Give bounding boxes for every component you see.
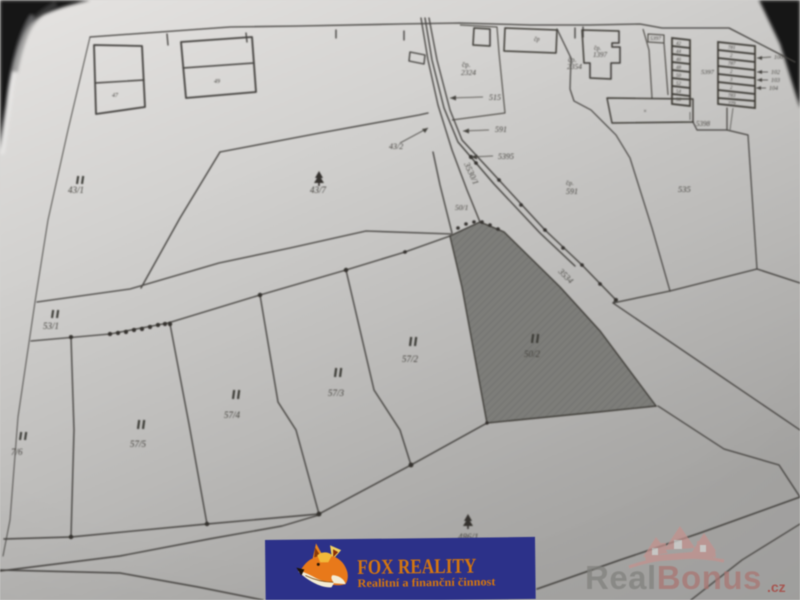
svg-text:43/2: 43/2	[389, 142, 403, 151]
svg-text:43/1: 43/1	[68, 185, 84, 195]
svg-text:2324: 2324	[461, 68, 476, 77]
svg-text:783: 783	[728, 94, 736, 99]
svg-text:42: 42	[676, 42, 682, 47]
svg-text:104: 104	[769, 85, 778, 92]
svg-text:57/2: 57/2	[402, 354, 419, 364]
svg-text:103: 103	[771, 78, 780, 84]
svg-text:52: 52	[676, 82, 682, 87]
svg-text:1397: 1397	[593, 51, 608, 59]
svg-text:100: 100	[774, 55, 783, 61]
svg-text:čp: čp	[534, 37, 540, 43]
svg-text:Realitní a finanční činnost: Realitní a finanční činnost	[357, 576, 495, 590]
svg-text:2354: 2354	[567, 62, 582, 71]
svg-text:.cz: .cz	[767, 579, 786, 595]
svg-text:5397: 5397	[650, 36, 661, 42]
svg-text:43/7: 43/7	[310, 185, 327, 195]
svg-text:781: 781	[728, 46, 736, 51]
svg-text:50/1: 50/1	[455, 203, 468, 212]
svg-text:591: 591	[566, 187, 578, 196]
svg-text:48: 48	[676, 66, 682, 71]
svg-text:56: 56	[676, 98, 682, 103]
svg-text:47: 47	[112, 92, 119, 99]
svg-text:46: 46	[676, 58, 682, 63]
svg-text:535: 535	[678, 184, 691, 194]
svg-text:102: 102	[771, 70, 780, 76]
svg-text:5397: 5397	[701, 69, 715, 76]
svg-text:FOX REALITY: FOX REALITY	[357, 554, 476, 579]
svg-text:57/4: 57/4	[224, 410, 241, 420]
svg-text:515: 515	[489, 93, 501, 102]
svg-text:5398: 5398	[696, 120, 711, 128]
svg-text:čp.: čp.	[566, 180, 574, 187]
svg-text:44: 44	[676, 50, 682, 55]
svg-text:57/5: 57/5	[130, 439, 147, 449]
svg-text:591: 591	[495, 125, 507, 134]
svg-text:50/2: 50/2	[524, 349, 541, 359]
svg-text:×: ×	[643, 109, 647, 115]
svg-text:50: 50	[676, 74, 682, 79]
svg-text:53/1: 53/1	[43, 321, 59, 331]
svg-text:5395: 5395	[498, 152, 514, 161]
svg-text:779: 779	[728, 102, 736, 107]
svg-text:787: 787	[728, 62, 736, 67]
svg-text:49: 49	[214, 78, 220, 85]
svg-text:57/3: 57/3	[328, 388, 345, 398]
svg-text:7/6: 7/6	[11, 447, 23, 457]
svg-text:RealBonus: RealBonus	[585, 559, 762, 596]
svg-text:54: 54	[676, 90, 682, 95]
